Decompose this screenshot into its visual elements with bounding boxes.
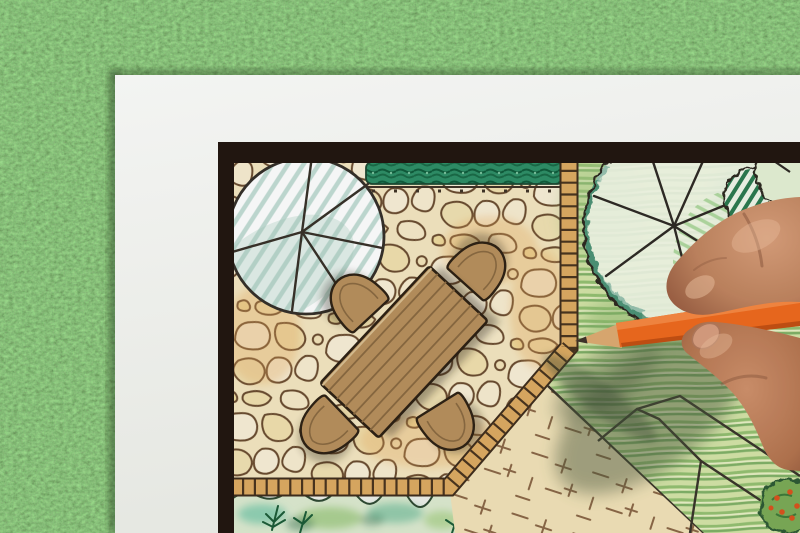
photo-scene bbox=[0, 0, 800, 533]
photo-vignette bbox=[0, 0, 800, 533]
scene-canvas bbox=[0, 0, 800, 533]
